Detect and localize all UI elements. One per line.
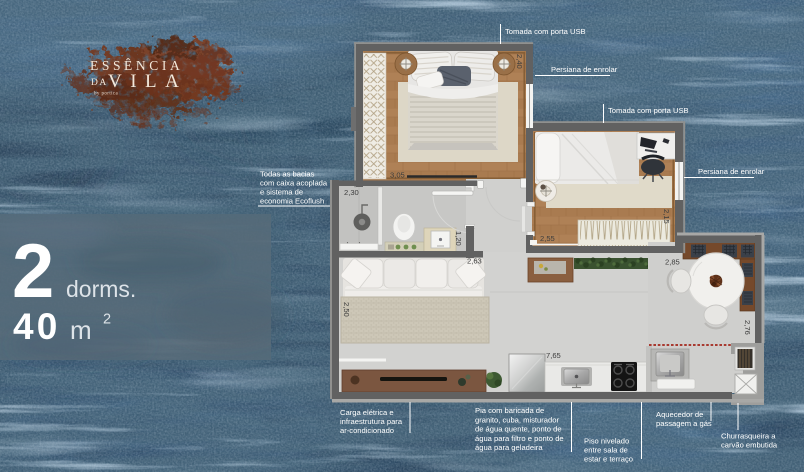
svg-text:passagem a gás: passagem a gás	[656, 419, 712, 428]
svg-text:dorms.: dorms.	[66, 276, 136, 302]
svg-text:2: 2	[12, 229, 54, 314]
svg-text:DA: DA	[91, 78, 108, 88]
svg-text:2: 2	[103, 312, 111, 328]
svg-text:1,20: 1,20	[454, 231, 463, 246]
svg-text:Persiana de enrolar: Persiana de enrolar	[551, 65, 618, 74]
svg-text:água para geladeira: água para geladeira	[475, 443, 543, 452]
svg-text:Pia com baricada de: Pia com baricada de	[475, 406, 544, 415]
svg-text:2,50: 2,50	[342, 302, 351, 317]
svg-text:Todas as bacias: Todas as bacias	[260, 170, 315, 179]
svg-text:2,63: 2,63	[467, 257, 482, 266]
svg-text:3,05: 3,05	[390, 171, 405, 180]
svg-text:2,55: 2,55	[540, 234, 555, 243]
svg-text:água para filtro e ponto de: água para filtro e ponto de	[475, 434, 564, 443]
svg-text:Piso nivelado: Piso nivelado	[584, 437, 629, 446]
svg-text:Carga elétrica e: Carga elétrica e	[340, 408, 394, 417]
svg-text:m: m	[70, 315, 92, 345]
svg-text:de água quente, ponto de: de água quente, ponto de	[475, 425, 562, 434]
svg-text:com caixa acoplada: com caixa acoplada	[260, 179, 328, 188]
svg-text:2,15: 2,15	[662, 209, 671, 224]
svg-text:2,40: 2,40	[515, 54, 524, 69]
svg-text:infraestrutura para: infraestrutura para	[340, 417, 403, 426]
svg-text:Persiana de enrolar: Persiana de enrolar	[698, 167, 765, 176]
svg-text:2,76: 2,76	[743, 320, 752, 335]
svg-text:40: 40	[13, 306, 61, 347]
svg-text:ar-condicionado: ar-condicionado	[340, 426, 394, 435]
svg-text:2,85: 2,85	[665, 258, 680, 267]
svg-text:economia Ecoflush: economia Ecoflush	[260, 197, 324, 206]
svg-text:carvão embutida: carvão embutida	[721, 441, 778, 450]
svg-text:e sistema de: e sistema de	[260, 188, 303, 197]
svg-text:Aquecedor de: Aquecedor de	[656, 410, 703, 419]
svg-text:entre sala de: entre sala de	[584, 446, 628, 455]
svg-text:Tomada com porta USB: Tomada com porta USB	[505, 27, 586, 36]
svg-text:Tomada com porta USB: Tomada com porta USB	[608, 106, 689, 115]
svg-text:7,65: 7,65	[546, 351, 561, 360]
svg-text:Churrasqueira a: Churrasqueira a	[721, 432, 776, 441]
svg-text:by portica: by portica	[94, 92, 119, 97]
svg-text:2,30: 2,30	[344, 188, 359, 197]
svg-text:granito, cuba, misturador: granito, cuba, misturador	[475, 415, 559, 424]
svg-text:estar e terraço: estar e terraço	[584, 455, 633, 464]
svg-text:VILA: VILA	[108, 71, 187, 92]
